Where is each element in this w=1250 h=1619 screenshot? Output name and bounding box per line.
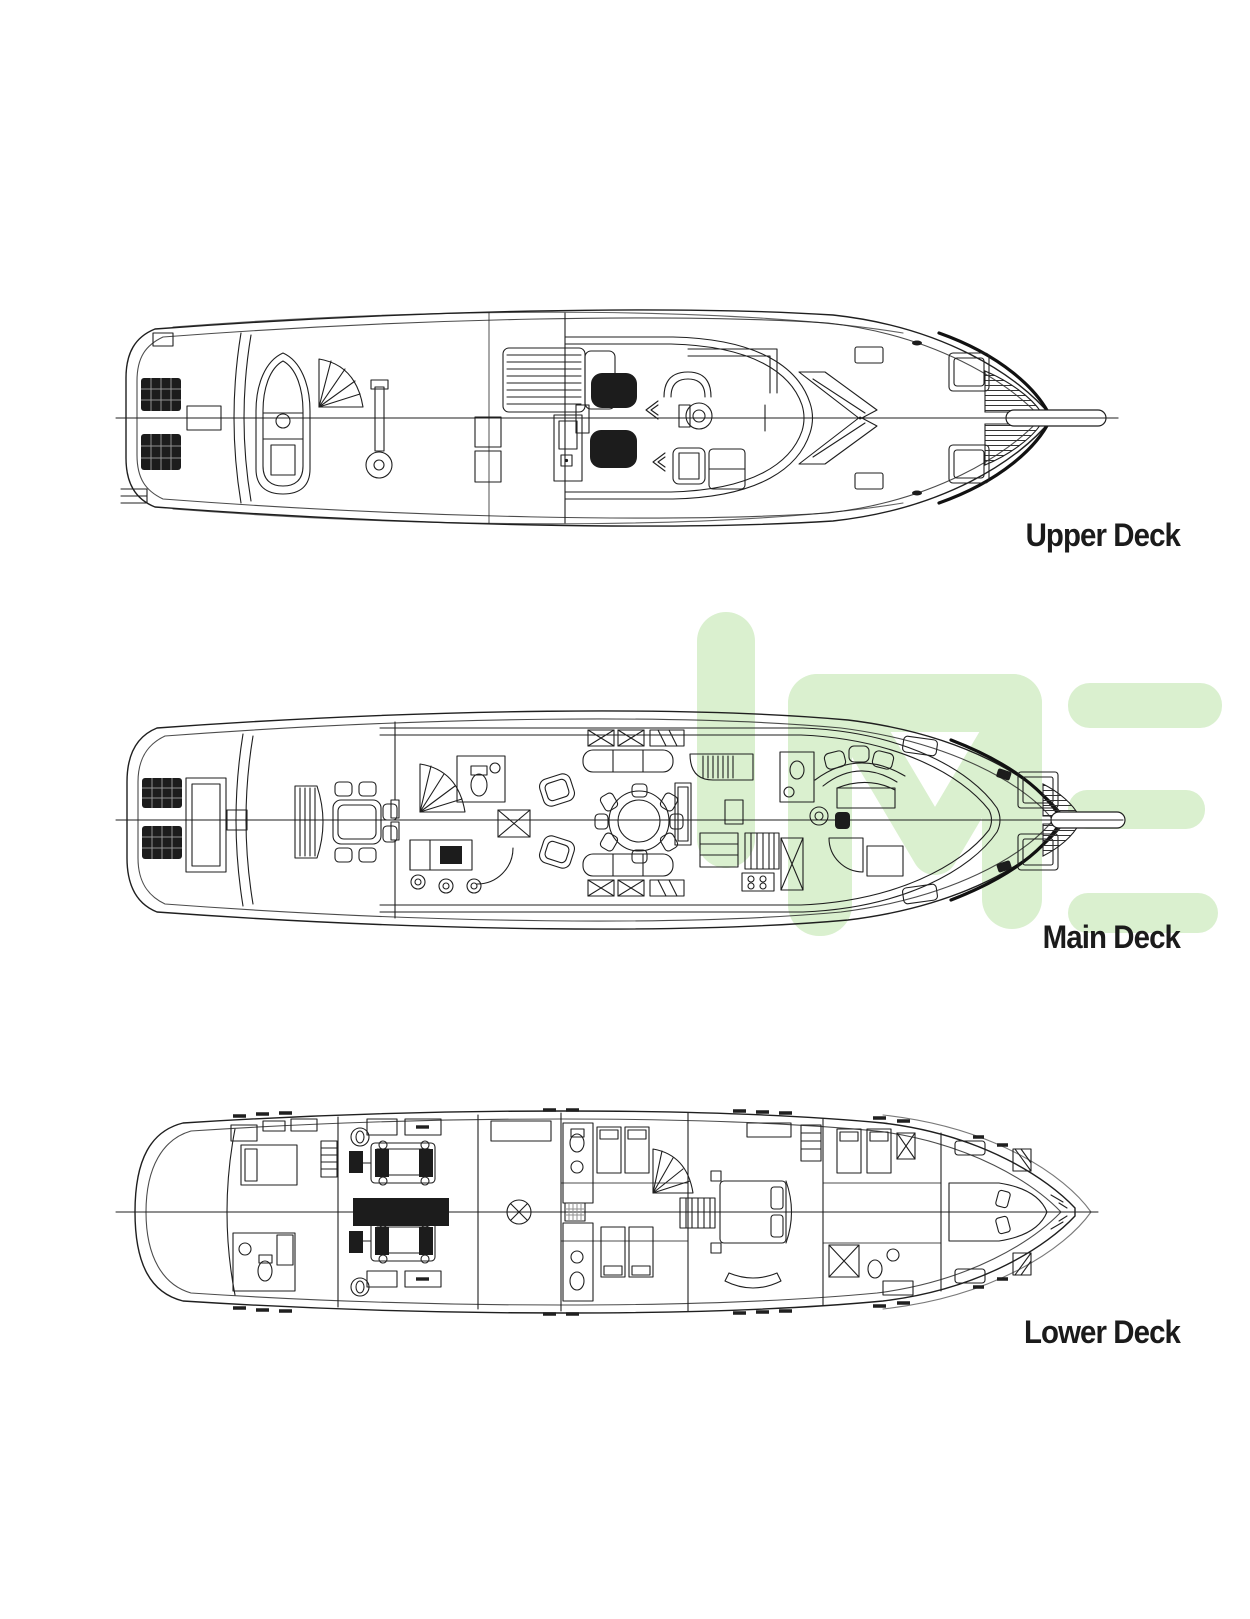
guest-cabin-aft (597, 1127, 693, 1277)
main-deck-label: Main Deck (941, 919, 1180, 956)
tender-icon (256, 353, 310, 494)
plan-sheet: Upper Deck (0, 0, 1250, 1619)
engine-room (349, 1119, 449, 1296)
spiral-stairs-icon (319, 359, 363, 407)
solar-panels (141, 378, 181, 470)
bar-counter (410, 840, 481, 893)
seating-table (653, 448, 745, 489)
crane-davit-icon (366, 380, 392, 478)
salon-furniture (498, 750, 691, 876)
tank-room (491, 1121, 551, 1224)
master-cabin (711, 1123, 821, 1288)
deck-lockers (475, 415, 582, 482)
solar-panels (142, 778, 182, 859)
day-head-forward (780, 752, 814, 802)
spiral-stairs-icon (420, 764, 465, 812)
main-deck-plan (113, 688, 1128, 938)
lower-deck-plan (113, 1085, 1103, 1320)
crew-quarters (231, 1119, 337, 1291)
companionway-stairs (680, 1198, 715, 1228)
lower-deck-label: Lower Deck (941, 1314, 1180, 1351)
upper-deck-label: Upper Deck (941, 517, 1180, 554)
fuel-tank (353, 1198, 449, 1226)
galley (690, 754, 774, 891)
upper-deck-plan (113, 293, 1123, 538)
dining-table (595, 784, 683, 863)
pilothouse (810, 746, 905, 876)
aft-deck-seating (295, 782, 397, 862)
